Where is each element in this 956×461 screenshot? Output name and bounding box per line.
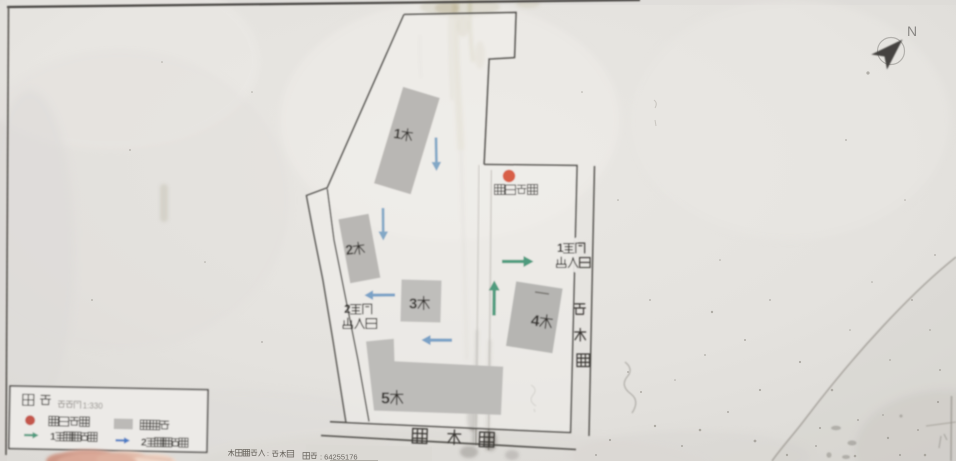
svg-text:1:330: 1:330: [83, 401, 104, 410]
svg-text:3: 3: [409, 297, 417, 313]
svg-text:N: N: [907, 23, 917, 39]
svg-text:2: 2: [344, 302, 351, 316]
svg-text:: 64255176: : 64255176: [320, 453, 358, 461]
svg-text:5: 5: [381, 389, 390, 407]
svg-text:1: 1: [557, 241, 564, 255]
svg-text::: :: [267, 451, 269, 458]
svg-text:2: 2: [141, 438, 147, 449]
svg-text:1: 1: [50, 432, 56, 443]
